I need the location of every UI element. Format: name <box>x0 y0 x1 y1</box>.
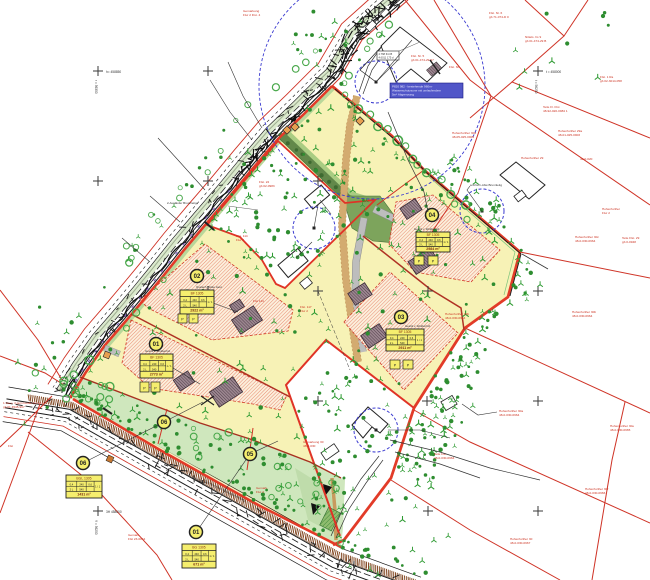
svg-text:0,4: 0,4 <box>70 482 74 486</box>
svg-text:240: 240 <box>192 298 197 302</box>
svg-text:Flur 2: Flur 2 <box>602 211 610 215</box>
svg-text:02: 02 <box>194 274 201 280</box>
svg-text:gb 0-0948: gb 0-0948 <box>622 240 636 244</box>
svg-text:Gestüt v. Woldenhof.: Gestüt v. Woldenhof. <box>414 227 440 231</box>
svg-text:48-0-030-0964: 48-0-030-0964 <box>575 239 596 243</box>
svg-text:r = 56300: r = 56300 <box>94 80 98 94</box>
svg-text:2 L: 2 L <box>185 557 189 561</box>
svg-text:3H 458600: 3H 458600 <box>106 510 122 514</box>
svg-text:540: 540 <box>79 488 84 492</box>
svg-text:Flst. Nr.: Flst. Nr. <box>449 65 460 69</box>
svg-text:0,4: 0,4 <box>143 362 147 366</box>
svg-text:Flur 2: Flur 2 <box>300 309 308 313</box>
svg-text:540: 540 <box>400 341 405 345</box>
svg-text:06: 06 <box>80 461 87 467</box>
svg-text:Flur 2 Flst. 4: Flur 2 Flst. 4 <box>243 13 260 17</box>
svg-text:Gestüt v. Woldenhof.: Gestüt v. Woldenhof. <box>145 349 171 353</box>
svg-text:h= 458850: h= 458850 <box>106 70 121 74</box>
svg-text:48-0-030-0964: 48-0-030-0964 <box>445 316 466 320</box>
svg-text:Flst 23-0044: Flst 23-0044 <box>128 537 145 541</box>
svg-text:540: 540 <box>192 303 197 307</box>
svg-text:2984 m²: 2984 m² <box>426 247 440 251</box>
svg-text:240: 240 <box>194 552 199 556</box>
svg-text:Flst 114: Flst 114 <box>253 299 264 303</box>
svg-text:240: 240 <box>400 336 405 340</box>
svg-text:0,4: 0,4 <box>183 298 187 302</box>
svg-text:1 / 1: 1 / 1 <box>209 554 215 558</box>
svg-text:a-Frisch-Abw Brunnleitg: a-Frisch-Abw Brunnleitg <box>470 183 502 187</box>
svg-text:48-0-030: 48-0-030 <box>303 444 316 448</box>
svg-text:2-Ausläufer Brunnleitg.: 2-Ausläufer Brunnleitg. <box>167 201 198 205</box>
svg-text:BG 1305: BG 1305 <box>192 546 205 550</box>
svg-text:BF 1305: BF 1305 <box>427 233 440 237</box>
svg-text:2 L: 2 L <box>143 367 147 371</box>
svg-text:48-01-025-0903: 48-01-025-0903 <box>558 133 580 137</box>
svg-text:BF 1305: BF 1305 <box>150 356 163 360</box>
svg-text:0,6: 0,6 <box>437 238 441 242</box>
svg-text:5m² Abgrenzung: 5m² Abgrenzung <box>392 93 414 97</box>
svg-text:540: 540 <box>152 367 157 371</box>
svg-text:48-0-030-0967: 48-0-030-0967 <box>510 541 531 545</box>
svg-text:gb 71-074-D 0: gb 71-074-D 0 <box>489 15 509 19</box>
svg-text:gb 01-474-29 B: gb 01-474-29 B <box>525 39 546 43</box>
svg-text:2773 m²: 2773 m² <box>150 373 164 377</box>
svg-text:1431 m²: 1431 m² <box>77 493 91 497</box>
svg-text:2 L: 2 L <box>419 242 423 246</box>
svg-text:t = 458000: t = 458000 <box>546 70 561 74</box>
svg-text:48-05-025-0905: 48-05-025-0905 <box>452 135 474 139</box>
svg-text:2 L: 2 L <box>390 341 394 345</box>
svg-text:540: 540 <box>428 242 433 246</box>
svg-text:Flur 2: Flur 2 <box>236 238 244 242</box>
svg-text:04: 04 <box>429 213 436 219</box>
svg-text:gb 01 4545-907: gb 01 4545-907 <box>3 405 25 409</box>
svg-text:01: 01 <box>193 530 200 536</box>
svg-text:48-0-030-0964: 48-0-030-0964 <box>434 456 455 460</box>
svg-text:48-0-030-0964: 48-0-030-0964 <box>499 413 520 417</box>
svg-text:gb 02-0983: gb 02-0983 <box>259 184 275 188</box>
svg-text:0,6: 0,6 <box>88 482 92 486</box>
svg-text:1 / 1: 1 / 1 <box>443 240 449 244</box>
svg-text:0,4: 0,4 <box>419 238 423 242</box>
svg-text:1 / 1: 1 / 1 <box>207 300 213 304</box>
svg-text:0,6: 0,6 <box>203 552 207 556</box>
svg-text:240: 240 <box>428 238 433 242</box>
svg-text:4.768 64.05: 4.768 64.05 <box>379 52 393 56</box>
svg-text:03: 03 <box>398 315 405 321</box>
svg-text:1 / 1: 1 / 1 <box>95 484 101 488</box>
svg-text:2 L: 2 L <box>183 303 187 307</box>
svg-text:BGL 1305: BGL 1305 <box>76 476 91 480</box>
svg-text:240: 240 <box>152 362 157 366</box>
svg-text:0,6: 0,6 <box>201 298 205 302</box>
svg-text:48-0-020: 48-0-020 <box>580 157 593 161</box>
svg-text:BF 1305: BF 1305 <box>399 330 412 334</box>
svg-text:48-0-030-0965: 48-0-030-0965 <box>610 428 631 432</box>
svg-text:01: 01 <box>153 342 160 348</box>
svg-text:t = 56200: t = 56200 <box>534 80 538 94</box>
svg-text:48-92-020-0984 1: 48-92-020-0984 1 <box>543 109 568 113</box>
svg-text:Flur 2: Flur 2 <box>256 490 264 494</box>
svg-text:540: 540 <box>194 557 199 561</box>
svg-text:2911 m²: 2911 m² <box>398 346 412 350</box>
svg-text:Quelach Wolke Gest.: Quelach Wolke Gest. <box>196 285 223 289</box>
svg-text:2 L: 2 L <box>70 488 74 492</box>
svg-text:Gestüt v. Woldenhof.: Gestüt v. Woldenhof. <box>405 324 431 328</box>
svg-text:Flst: Flst <box>8 444 13 448</box>
svg-text:240: 240 <box>79 482 84 486</box>
svg-text:BF 1305: BF 1305 <box>191 292 204 296</box>
svg-text:2922 m²: 2922 m² <box>190 309 204 313</box>
svg-text:48-0-030-0964: 48-0-030-0964 <box>572 314 593 318</box>
svg-text:4.6011 175 d: 4.6011 175 d <box>379 56 395 60</box>
svg-text:0,4: 0,4 <box>390 336 394 340</box>
svg-text:05: 05 <box>247 452 254 458</box>
svg-text:1 / 1: 1 / 1 <box>417 338 423 342</box>
svg-text:1 / 1: 1 / 1 <box>167 364 173 368</box>
svg-text:gb 02-3014-058: gb 02-3014-058 <box>600 79 622 83</box>
svg-text:48-0-030-0966: 48-0-030-0966 <box>585 491 606 495</box>
svg-text:0,6: 0,6 <box>160 362 164 366</box>
svg-text:671 m²: 671 m² <box>193 563 205 567</box>
svg-text:0,4: 0,4 <box>185 552 189 556</box>
svg-text:0,6: 0,6 <box>410 336 414 340</box>
svg-text:Y = 56200: Y = 56200 <box>94 520 98 535</box>
svg-text:06: 06 <box>161 420 168 426</box>
svg-text:Hohenfurther 29: Hohenfurther 29 <box>521 156 544 160</box>
